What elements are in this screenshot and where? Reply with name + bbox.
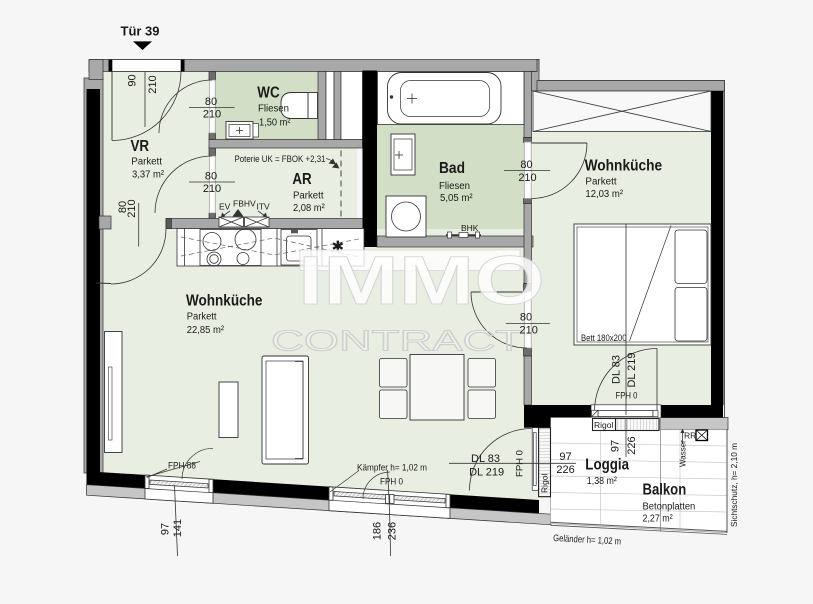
svg-text:BHK: BHK (461, 223, 479, 233)
svg-text:DL 83: DL 83 (611, 355, 623, 384)
svg-text:210: 210 (518, 172, 536, 184)
svg-text:Rigol: Rigol (594, 420, 613, 430)
svg-text:226: 226 (626, 436, 638, 454)
svg-text:210: 210 (147, 75, 159, 93)
svg-text:Kämpfer h= 1,02 m: Kämpfer h= 1,02 m (357, 463, 427, 474)
svg-text:Wasser: Wasser (679, 440, 688, 467)
svg-text:AR: AR (292, 171, 312, 188)
svg-text:DL 83: DL 83 (471, 453, 500, 465)
svg-text:236: 236 (387, 522, 399, 540)
svg-text:210: 210 (203, 109, 221, 121)
svg-text:210: 210 (520, 325, 538, 337)
svg-text:CONTRACT: CONTRACT (271, 326, 523, 358)
svg-text:2,27 m²: 2,27 m² (643, 514, 674, 525)
svg-text:Poterie UK = FBOK +2,31: Poterie UK = FBOK +2,31 (235, 154, 326, 165)
svg-text:Parkett: Parkett (293, 190, 324, 201)
svg-text:DL 219: DL 219 (469, 466, 504, 478)
svg-text:Bett 180x200: Bett 180x200 (581, 333, 627, 343)
svg-text:Fliesen: Fliesen (258, 104, 289, 115)
svg-text:80: 80 (520, 159, 532, 171)
svg-text:Fliesen: Fliesen (439, 181, 470, 192)
svg-text:5,05 m²: 5,05 m² (440, 193, 473, 204)
svg-text:Wohnküche: Wohnküche (585, 158, 663, 175)
svg-text:80: 80 (520, 312, 532, 324)
svg-text:1,50 m²: 1,50 m² (259, 118, 291, 129)
svg-text:FPH 0: FPH 0 (380, 477, 403, 488)
svg-text:97: 97 (160, 523, 172, 535)
svg-text:Loggia: Loggia (585, 457, 629, 474)
svg-text:ITV: ITV (257, 202, 271, 212)
svg-text:226: 226 (556, 464, 574, 476)
svg-text:12,03 m²: 12,03 m² (585, 189, 623, 200)
svg-text:2,08 m²: 2,08 m² (293, 203, 325, 214)
svg-text:Parkett: Parkett (187, 312, 217, 323)
svg-text:Rigol: Rigol (540, 474, 550, 493)
svg-text:Wohnküche: Wohnküche (186, 293, 262, 310)
svg-text:DL 219: DL 219 (626, 352, 638, 387)
svg-text:97: 97 (610, 440, 622, 452)
svg-text:Parkett: Parkett (585, 176, 616, 187)
svg-text:186: 186 (372, 522, 384, 540)
svg-text:22,85 m²: 22,85 m² (187, 325, 225, 336)
svg-text:IMMO: IMMO (298, 242, 545, 319)
svg-text:EV: EV (219, 202, 231, 212)
svg-text:80: 80 (205, 96, 217, 108)
svg-text:1,38 m²: 1,38 m² (587, 476, 618, 487)
svg-text:Bad: Bad (439, 160, 465, 177)
svg-text:WC: WC (257, 84, 280, 101)
svg-text:141: 141 (172, 519, 184, 537)
svg-text:Balkon: Balkon (643, 482, 687, 499)
svg-text:FPH 88: FPH 88 (168, 461, 196, 472)
svg-text:3,37 m²: 3,37 m² (132, 170, 165, 181)
svg-text:Parkett: Parkett (131, 156, 162, 167)
svg-text:90: 90 (127, 74, 139, 86)
svg-text:VR: VR (131, 138, 150, 155)
svg-text:FBHV: FBHV (233, 199, 256, 209)
svg-text:Tür 39: Tür 39 (121, 24, 160, 39)
svg-text:97: 97 (559, 451, 571, 463)
svg-text:80: 80 (205, 171, 217, 183)
svg-text:Sichtschutz, h= 2,10 m: Sichtschutz, h= 2,10 m (729, 443, 739, 527)
svg-text:FPH 0: FPH 0 (616, 391, 638, 402)
svg-text:210: 210 (126, 199, 138, 217)
svg-text:210: 210 (203, 183, 221, 195)
svg-text:RR: RR (684, 431, 696, 441)
svg-text:Betonplatten: Betonplatten (643, 502, 696, 513)
